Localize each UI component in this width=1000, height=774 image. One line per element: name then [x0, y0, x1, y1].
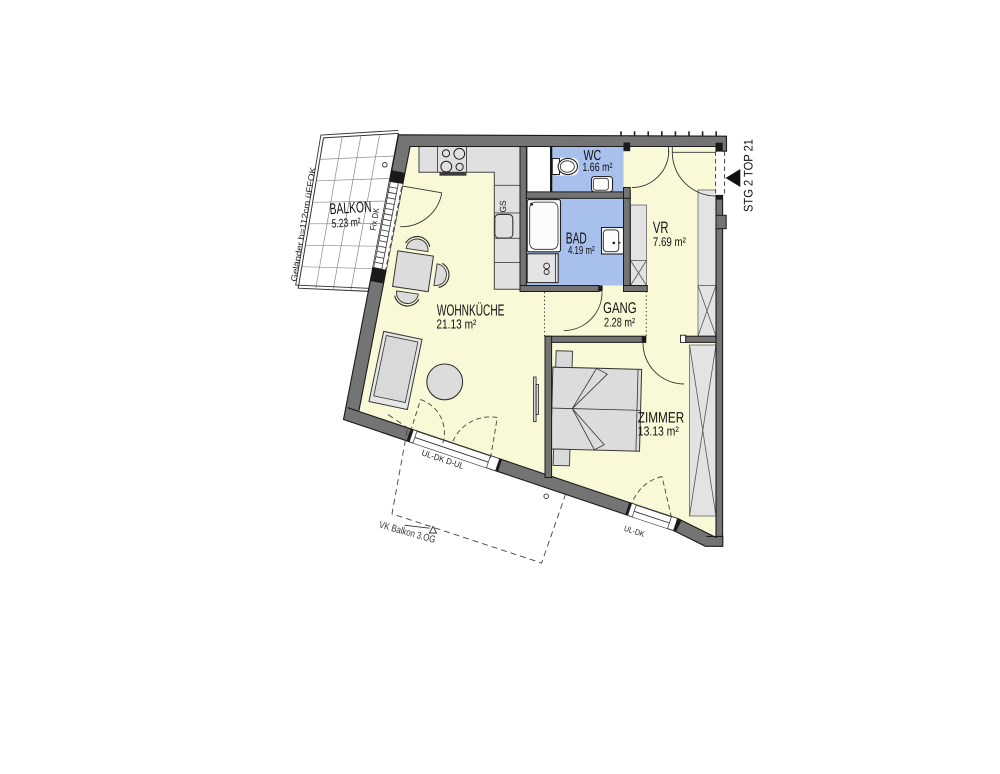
svg-text:1.66 m²: 1.66 m²	[582, 160, 612, 174]
svg-text:13.13 m²: 13.13 m²	[638, 424, 680, 439]
svg-text:4.19 m²: 4.19 m²	[568, 245, 595, 257]
svg-text:STG 2 TOP 21: STG 2 TOP 21	[742, 139, 756, 212]
svg-text:2.28 m²: 2.28 m²	[604, 315, 635, 329]
svg-text:21.13 m²: 21.13 m²	[436, 317, 477, 332]
svg-text:5.23 m²: 5.23 m²	[331, 215, 361, 231]
svg-text:7.69 m²: 7.69 m²	[653, 235, 686, 249]
svg-text:GS: GS	[498, 201, 508, 213]
